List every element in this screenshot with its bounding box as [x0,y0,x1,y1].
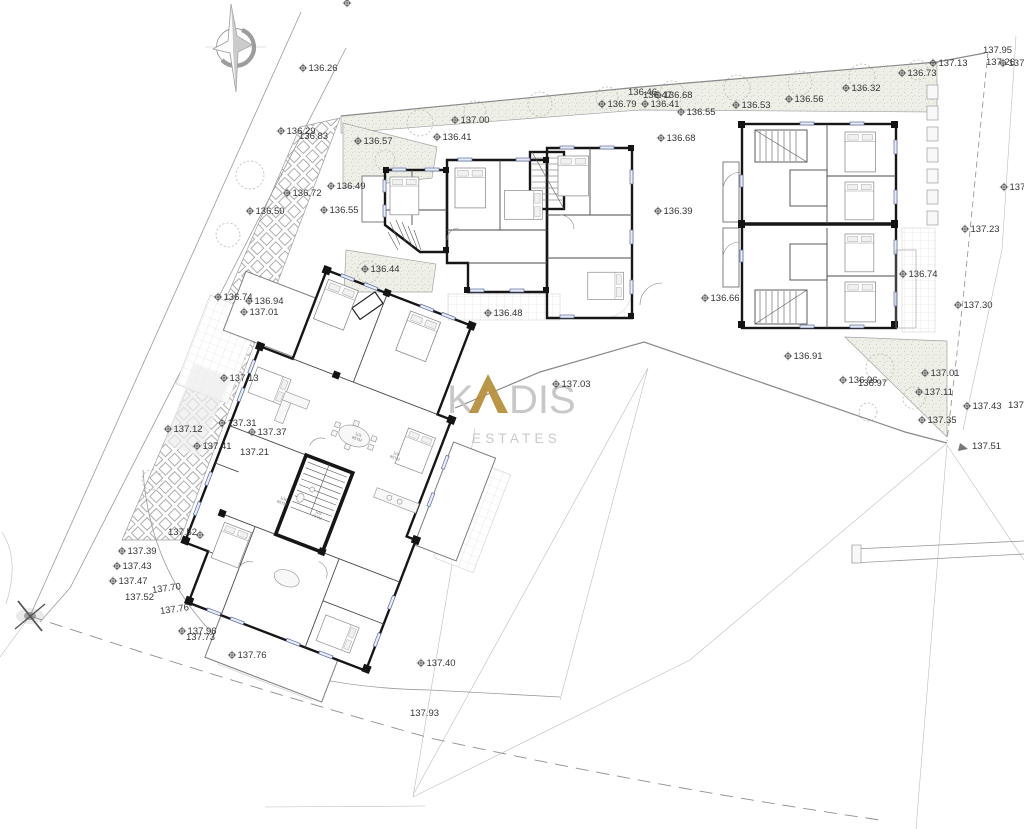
watermark-estates: ESTATES [472,431,561,446]
building-top-right [723,121,916,328]
elevation-marker: 137.35 [918,415,957,426]
svg-text:137.12: 137.12 [174,424,203,435]
elevation-marker: 137.40 [417,658,456,669]
svg-text:136.55: 136.55 [330,205,359,216]
svg-text:136.79: 136.79 [608,99,637,110]
svg-text:137.01: 137.01 [931,368,960,379]
svg-text:136.49: 136.49 [337,181,366,192]
svg-text:137.51: 137.51 [972,441,1001,452]
svg-text:137.95: 137.95 [983,45,1012,56]
svg-text:136.94: 136.94 [255,296,284,307]
svg-text:136.39: 136.39 [664,206,693,217]
elevation-marker: 137.76 [159,602,189,617]
elevation-marker: 136.49 [327,181,366,192]
elevation-marker: 136.39 [654,206,693,217]
svg-text:137.01: 137.01 [250,307,279,318]
svg-text:136.83: 136.83 [299,131,328,142]
svg-text:137.52: 137.52 [1008,400,1024,411]
svg-text:136.50: 136.50 [256,206,285,217]
elevation-marker: 136.83 [299,131,328,142]
svg-text:137.37: 137.37 [258,427,287,438]
elevation-marker: 137.73 [186,632,215,643]
svg-text:136.72: 136.72 [293,188,322,199]
svg-text:137.70: 137.70 [151,581,181,596]
elevation-marker: 136.50 [246,206,285,217]
svg-text:136.26: 136.26 [309,63,338,74]
elevation-marker: 136.55 [320,205,359,216]
svg-text:137.03: 137.03 [562,379,591,390]
svg-text:136.74: 136.74 [224,292,253,303]
elevation-marker: 136.68 [657,133,696,144]
svg-text:136.68: 136.68 [667,133,696,144]
svg-text:137.30: 137.30 [964,300,993,311]
elevation-marker: 136.41 [433,132,472,143]
svg-text:137.39: 137.39 [128,546,157,557]
svg-text:137.52: 137.52 [168,527,197,538]
survey-junction [15,601,45,631]
building-top-middle [352,145,662,319]
elevation-marker: 137.93 [410,708,439,719]
svg-text:137.13: 137.13 [939,58,968,69]
svg-text:137.13: 137.13 [230,373,259,384]
elevation-marker: 137.51 [972,441,1001,452]
site-plan: 10185TM10285TM10485TM10375TM K DIS ESTAT… [0,0,1024,829]
elevation-marker: 137.52 [1008,400,1024,411]
svg-text:136.97: 136.97 [858,378,887,389]
svg-text:136.44: 136.44 [371,264,400,275]
svg-text:136.57: 136.57 [364,136,393,147]
svg-text:137.52: 137.52 [125,592,154,603]
elevation-marker: 136.97 [858,378,887,389]
elevation-marker: 137.21 [240,447,269,458]
elevation-marker: 137.52 [125,592,154,603]
elevation-marker: 137.70 [151,581,181,596]
svg-text:137.73: 137.73 [186,632,215,643]
svg-text:136.91: 136.91 [794,351,823,362]
svg-text:137.40: 137.40 [427,658,456,669]
elevation-marker: 137.23 [961,224,1000,235]
svg-text:137.23: 137.23 [971,224,1000,235]
site-plan-drawing: 10185TM10285TM10485TM10375TM K DIS ESTAT… [0,0,1024,829]
elevation-marker: 137.95 [983,45,1012,56]
elevation-marker [343,0,351,7]
svg-text:137.76: 137.76 [238,650,267,661]
svg-text:137.43: 137.43 [973,401,1002,412]
svg-text:137.21: 137.21 [240,447,269,458]
elevation-marker: 137.43 [113,561,152,572]
svg-text:137.43: 137.43 [123,561,152,572]
north-arrow-icon [205,4,266,92]
elevation-marker: 136.91 [784,351,823,362]
svg-text:137.47: 137.47 [119,576,148,587]
svg-text:137.35: 137.35 [928,415,957,426]
svg-text:137.31: 137.31 [228,418,257,429]
retaining-wall [927,85,938,225]
svg-text:136.48: 136.48 [494,308,523,319]
svg-text:136.74: 136.74 [909,269,938,280]
elevation-marker: 137.52 [168,527,197,538]
svg-text:136.56: 136.56 [795,94,824,105]
svg-text:136.73: 136.73 [908,68,937,79]
svg-text:136.55: 136.55 [687,107,716,118]
svg-text:136.53: 136.53 [742,100,771,111]
elevation-marker: 137.39 [118,546,157,557]
svg-text:137.11: 137.11 [925,387,953,398]
svg-text:136.41: 136.41 [651,99,680,110]
watermark-k: K [447,378,474,422]
svg-text:136.41: 136.41 [443,132,472,143]
elevation-marker: 136.66 [701,293,740,304]
svg-text:136.32: 136.32 [852,83,881,94]
svg-text:137: 137 [1010,182,1024,193]
svg-text:137.00: 137.00 [461,115,490,126]
svg-text:137.93: 137.93 [410,708,439,719]
elevation-marker: 136.26 [299,63,338,74]
elevation-marker: 137.30 [954,300,993,311]
elevation-marker: 137.47 [109,576,148,587]
svg-text:137.76: 137.76 [159,602,189,617]
svg-text:137.41: 137.41 [203,441,232,452]
svg-text:137: 137 [1009,58,1024,69]
elevation-marker: 137 [1000,182,1024,193]
svg-text:136.66: 136.66 [711,293,740,304]
